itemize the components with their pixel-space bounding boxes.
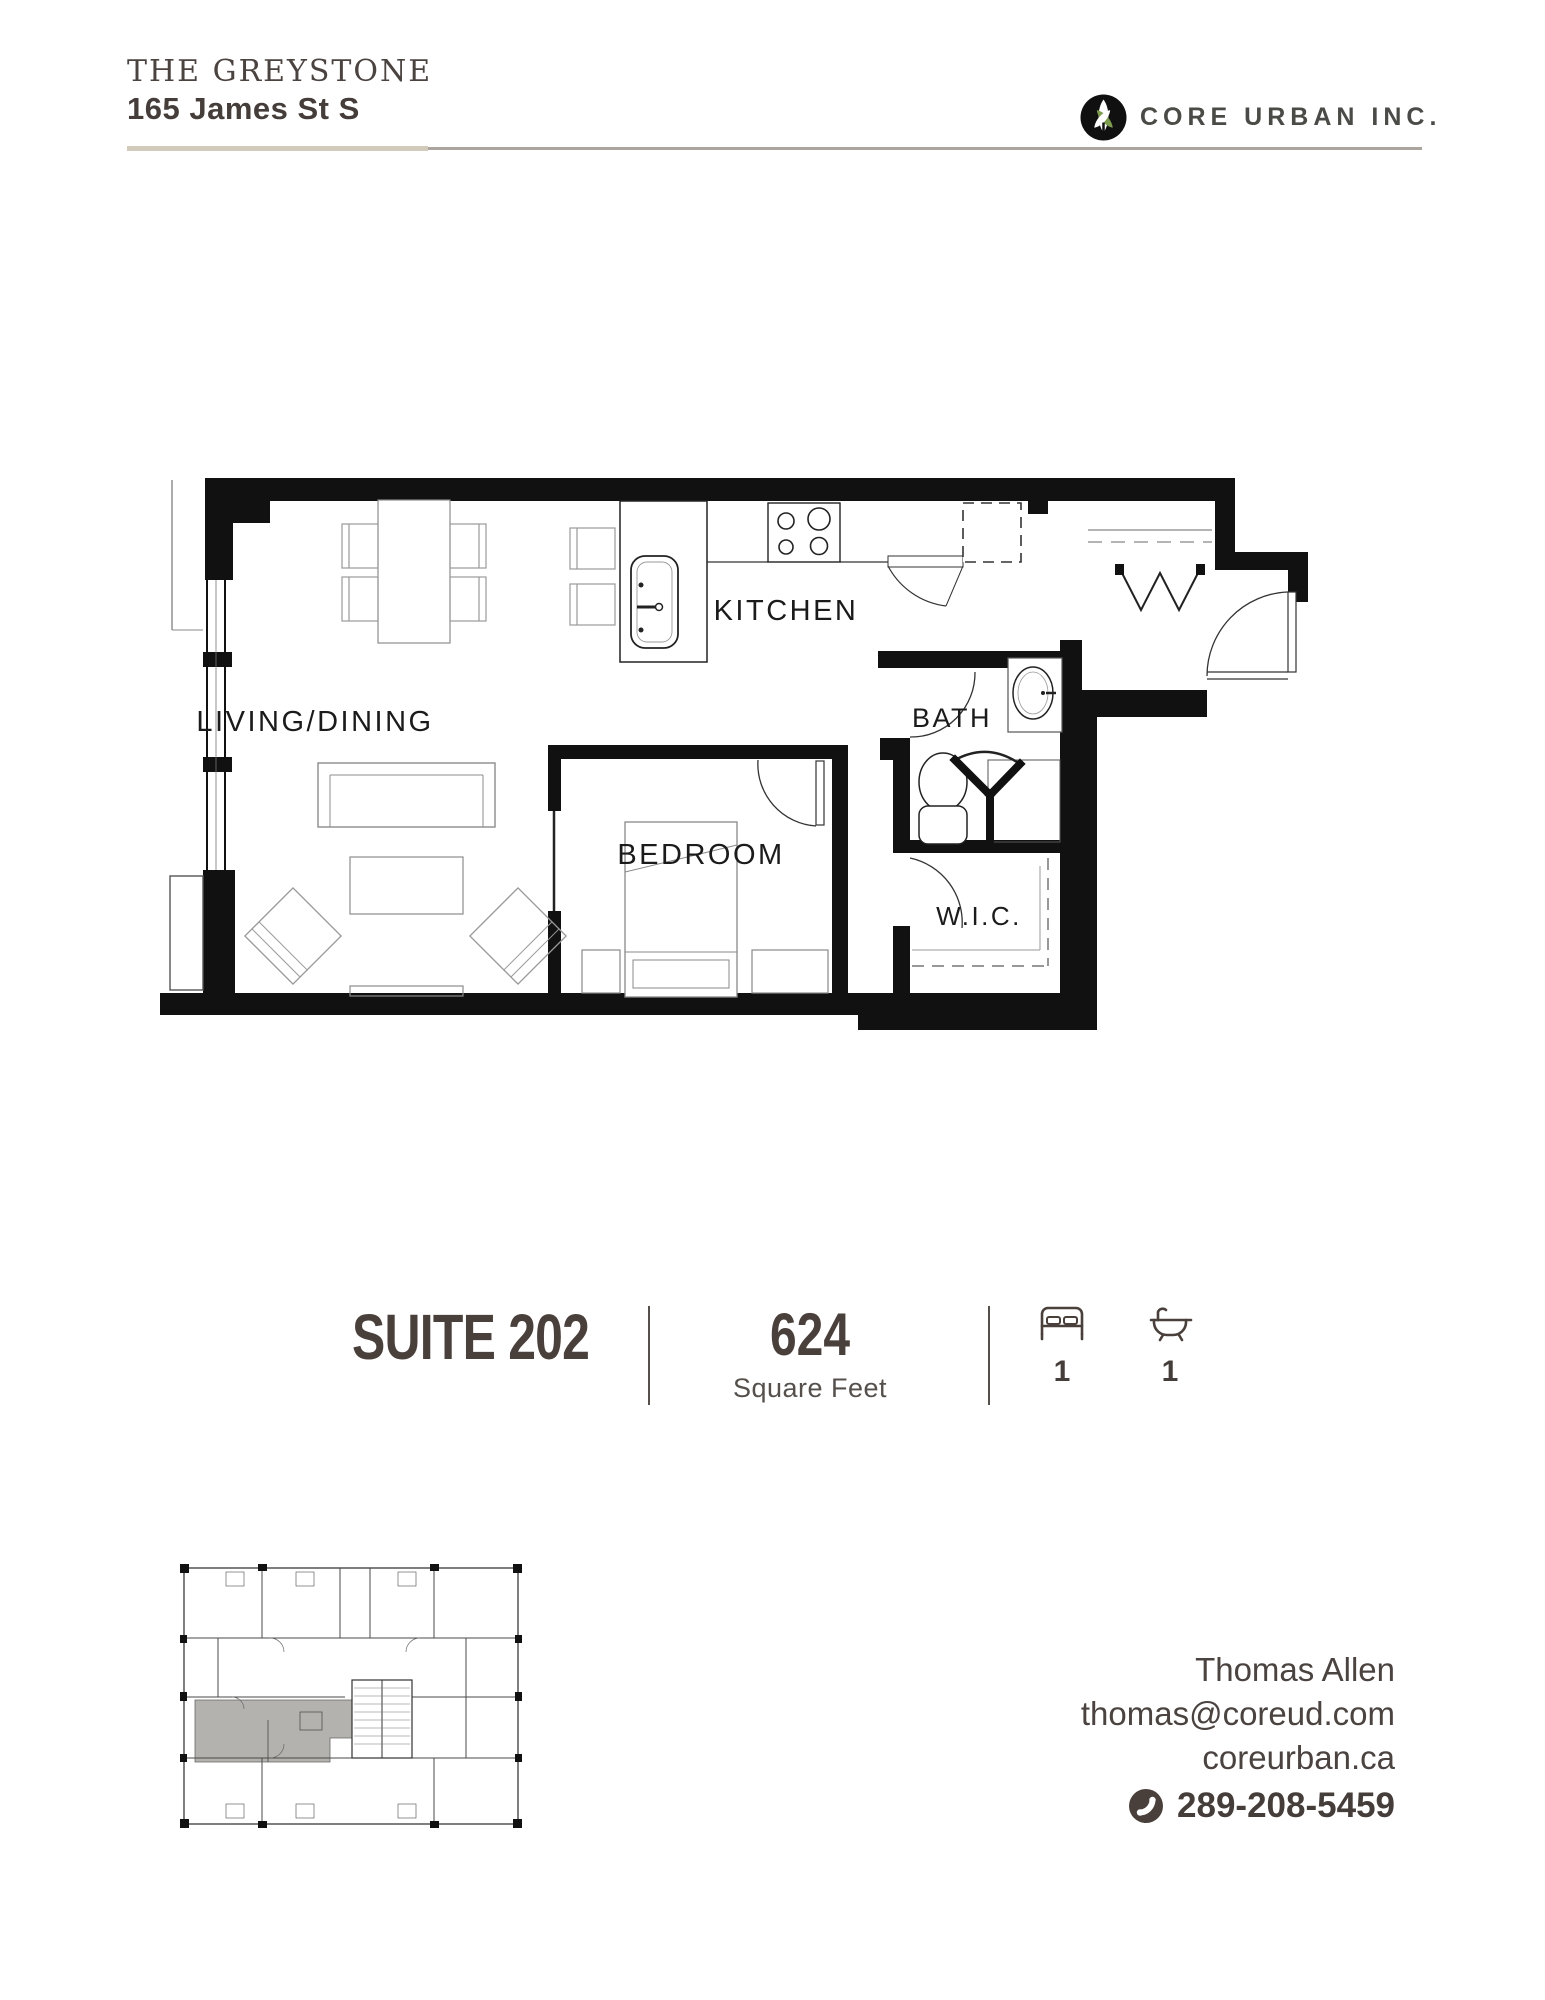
room-label-bedroom: BEDROOM <box>617 839 784 871</box>
room-label-bath: BATH <box>912 703 992 733</box>
header-accent-rule <box>127 146 428 151</box>
stove-icon <box>768 503 840 562</box>
kitchen-fixtures <box>570 501 1021 662</box>
bathroom-count: 1 <box>1120 1304 1220 1389</box>
contact-phone-row: 289-208-5459 <box>1081 1786 1395 1826</box>
header-rule <box>428 147 1422 150</box>
bedroom-fixtures <box>582 760 828 997</box>
bed-icon <box>1038 1304 1086 1342</box>
highlighted-suite <box>195 1700 352 1762</box>
room-label-wic: W.I.C. <box>936 901 1022 931</box>
contact-name: Thomas Allen <box>1081 1648 1395 1692</box>
floorplan-sheet: THE GREYSTONE 165 James St S CORE URBAN … <box>0 0 1545 2000</box>
bathtub-icon <box>1146 1304 1194 1342</box>
phone-icon <box>1128 1788 1164 1824</box>
kitchen-sink-icon <box>631 556 678 648</box>
divider <box>648 1306 650 1405</box>
living-furniture <box>245 500 566 996</box>
contact-block: Thomas Allen thomas@coreud.com coreurban… <box>1081 1648 1395 1826</box>
room-label-kitchen: KITCHEN <box>714 595 859 627</box>
bath-fixtures <box>910 658 1062 844</box>
stair-core <box>352 1680 412 1758</box>
building-address: 165 James St S <box>127 91 360 127</box>
unit-floorplan: LIVING/DINING KITCHEN BATH BEDROOM W.I.C… <box>150 460 1320 1040</box>
square-feet-label: Square Feet <box>708 1373 912 1404</box>
suite-title: SUITE 202 <box>352 1300 589 1374</box>
contact-website[interactable]: coreurban.ca <box>1081 1736 1395 1780</box>
leaf-sprout-icon <box>1080 94 1127 141</box>
building-keyplan <box>160 1540 540 1840</box>
company-name: CORE URBAN INC. <box>1140 103 1441 132</box>
divider <box>988 1306 990 1405</box>
company-logo: CORE URBAN INC. <box>1080 94 1441 141</box>
sofa-icon <box>318 763 495 827</box>
contact-phone[interactable]: 289-208-5459 <box>1177 1786 1395 1826</box>
room-label-living-dining: LIVING/DINING <box>196 706 433 738</box>
shower-icon <box>988 760 1060 842</box>
contact-email[interactable]: thomas@coreud.com <box>1081 1692 1395 1736</box>
square-feet-value: 624 <box>738 1300 882 1369</box>
building-name: THE GREYSTONE <box>127 54 432 89</box>
fridge-icon <box>963 503 1021 562</box>
entry-door <box>1207 592 1296 679</box>
bedroom-count: 1 <box>1012 1304 1112 1389</box>
entry-closet <box>1088 530 1212 610</box>
